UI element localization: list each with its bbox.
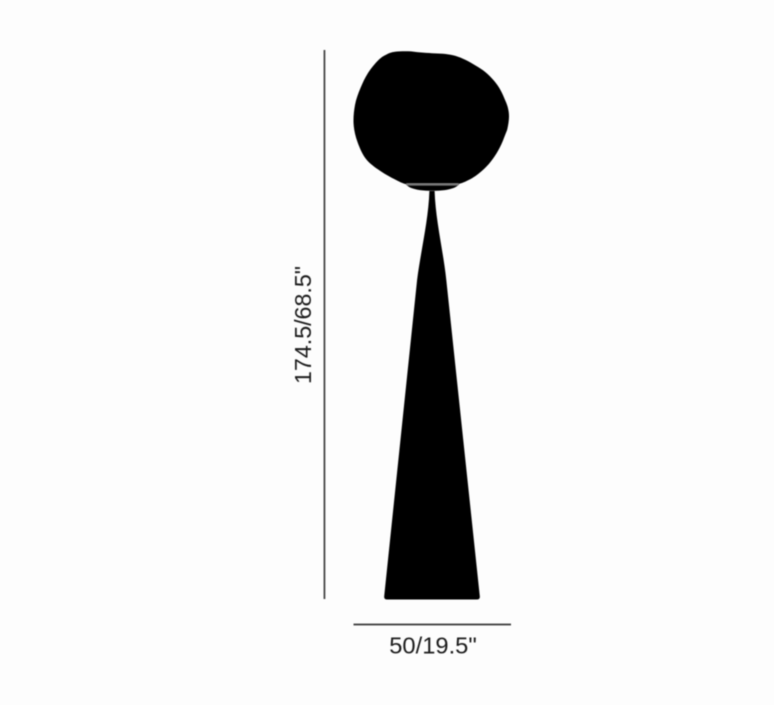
svg-text:174.5/68.5": 174.5/68.5" <box>290 266 316 384</box>
svg-text:50/19.5": 50/19.5" <box>389 633 477 659</box>
